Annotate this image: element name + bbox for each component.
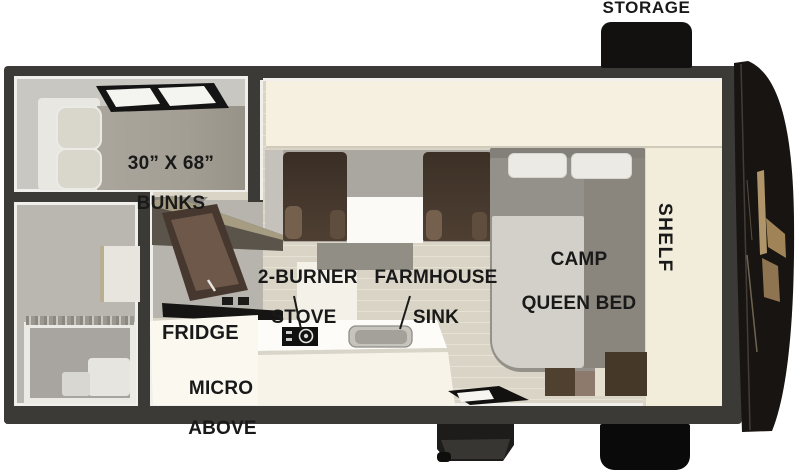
sink-label-line1: FARMHOUSE [374, 267, 497, 288]
stove-label-line2: STOVE [271, 307, 336, 328]
brand-emblem-icon [747, 170, 786, 352]
bed-label-line2: QUEEN BED [522, 293, 637, 314]
sink-label-line2: SINK [413, 307, 459, 328]
bed-foot-block-b [575, 371, 595, 396]
bed-label-line1: CAMP [551, 249, 608, 270]
bathroom-window [100, 246, 140, 302]
sink-label: FARMHOUSE SINK [352, 248, 498, 348]
bed-foot-block-a [545, 368, 575, 396]
storage-label: STORAGE [565, 0, 728, 18]
dinette-chair-left-armrest-b [330, 210, 345, 239]
bunks-label: 30” X 68” BUNKS [90, 134, 230, 234]
toilet-shape [88, 358, 130, 396]
bed-pillow-right [571, 153, 632, 179]
exterior-storage-box-bottom [600, 424, 690, 470]
micro-label-line1: MICRO [189, 378, 253, 399]
bunks-label-line1: 30” X 68” [128, 153, 214, 174]
bunks-label-line2: BUNKS [137, 193, 206, 214]
bed-pillow-left [508, 153, 567, 178]
upper-cabinet-band [266, 81, 722, 148]
wall-strip-left-of-dinette [265, 150, 283, 242]
rear-cap [734, 61, 794, 432]
stove-label-line1: 2-BURNER [258, 267, 358, 288]
dinette-chair-right-armrest-b [472, 212, 487, 240]
dinette-chair-left-armrest-a [285, 206, 302, 239]
shower-step-shape [62, 372, 90, 396]
dinette-table [347, 197, 423, 243]
divider-wall-trim [260, 80, 263, 200]
dinette-chair-right-armrest-a [426, 210, 442, 240]
shower-speckle-rail [26, 316, 134, 325]
shelf-label: SHELF [648, 203, 674, 315]
entry-step [437, 424, 514, 462]
micro-label: MICRO ABOVE [167, 359, 263, 459]
fridge-label: FRIDGE [162, 323, 262, 343]
floorplan-canvas: STORAGE [0, 0, 800, 472]
micro-label-line2: ABOVE [188, 418, 257, 439]
exterior-storage-box-top [601, 22, 692, 68]
bed-foot-wardrobe [605, 352, 647, 396]
bed-label: CAMP QUEEN BED [494, 227, 642, 337]
